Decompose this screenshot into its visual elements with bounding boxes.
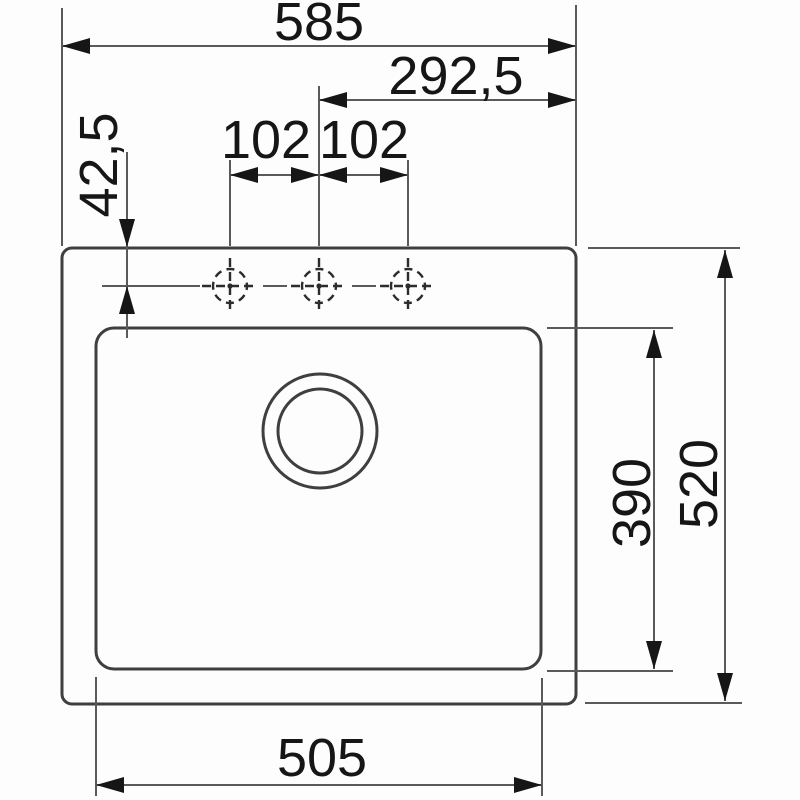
arrowhead-left-icon (96, 777, 124, 793)
drain-outer-circle (263, 374, 377, 488)
dimension-hole-spacing-102: 102 102 (221, 110, 409, 246)
dimension-bowl-width-505: 505 (96, 677, 542, 796)
crosshair-center-dot (316, 283, 321, 288)
crosshair-center-dot (405, 283, 410, 288)
dimension-label: 585 (274, 0, 364, 52)
dimension-label: 520 (669, 439, 729, 529)
drain-inner-circle (278, 389, 362, 473)
dimension-label-left: 102 (221, 110, 311, 170)
dimension-label-right: 102 (319, 110, 409, 170)
sink-body (62, 248, 576, 704)
arrowhead-down-icon (646, 641, 662, 669)
arrowhead-up-icon (119, 286, 135, 314)
dimension-bowl-depth-390: 390 (547, 328, 673, 671)
dimension-label: 42,5 (69, 112, 129, 217)
arrowhead-left-icon (62, 38, 90, 54)
dimension-label: 505 (277, 728, 367, 788)
arrowhead-left-icon (319, 92, 347, 108)
arrowhead-up-icon (646, 330, 662, 358)
arrowhead-down-icon (717, 673, 733, 701)
sink-technical-drawing: 585 292,5 102 102 42,5 390 (0, 0, 800, 800)
dimension-label: 390 (602, 458, 662, 548)
arrowhead-up-icon (717, 250, 733, 278)
sink-bowl-outline (96, 328, 541, 669)
crosshair-center-dot (227, 283, 232, 288)
dimension-hole-edge-offset-42-5: 42,5 (69, 112, 135, 338)
arrowhead-right-icon (548, 38, 576, 54)
arrowhead-down-icon (119, 219, 135, 247)
sink-rim-outline (62, 248, 576, 704)
arrowhead-right-icon (514, 777, 542, 793)
dimension-label: 292,5 (388, 46, 523, 106)
arrowhead-right-icon (548, 92, 576, 108)
faucet-hole-right (380, 258, 436, 314)
faucet-hole-left (202, 258, 258, 314)
faucet-hole-center (291, 258, 347, 314)
